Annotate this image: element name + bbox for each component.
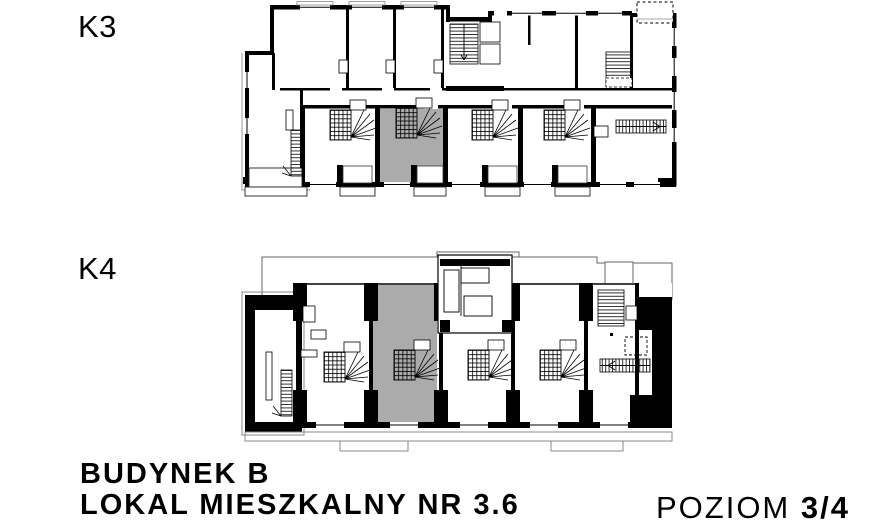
level-value: 3/4	[801, 490, 850, 525]
unit-name: LOKAL MIESZKALNY NR 3.6	[80, 490, 520, 521]
k3-shaft	[286, 110, 293, 130]
k4-entrance-core	[438, 255, 512, 333]
k3-balcony-dashed	[637, 2, 673, 23]
level-indicator: POZIOM 3/4	[656, 490, 850, 526]
floor-plan-k4	[242, 252, 672, 451]
k4-terrace-notch	[605, 262, 633, 285]
floor-plan-drawing	[0, 0, 888, 532]
floor-plan-k3	[242, 2, 677, 197]
k4-pavement	[245, 432, 672, 451]
footer-title: BUDYNEK B LOKAL MIESZKALNY NR 3.6	[80, 459, 520, 521]
building-name: BUDYNEK B	[80, 459, 520, 490]
page: K3 K4	[0, 0, 888, 532]
level-label: POZIOM	[656, 490, 790, 525]
k3-upper-stairs-icon	[606, 52, 632, 87]
